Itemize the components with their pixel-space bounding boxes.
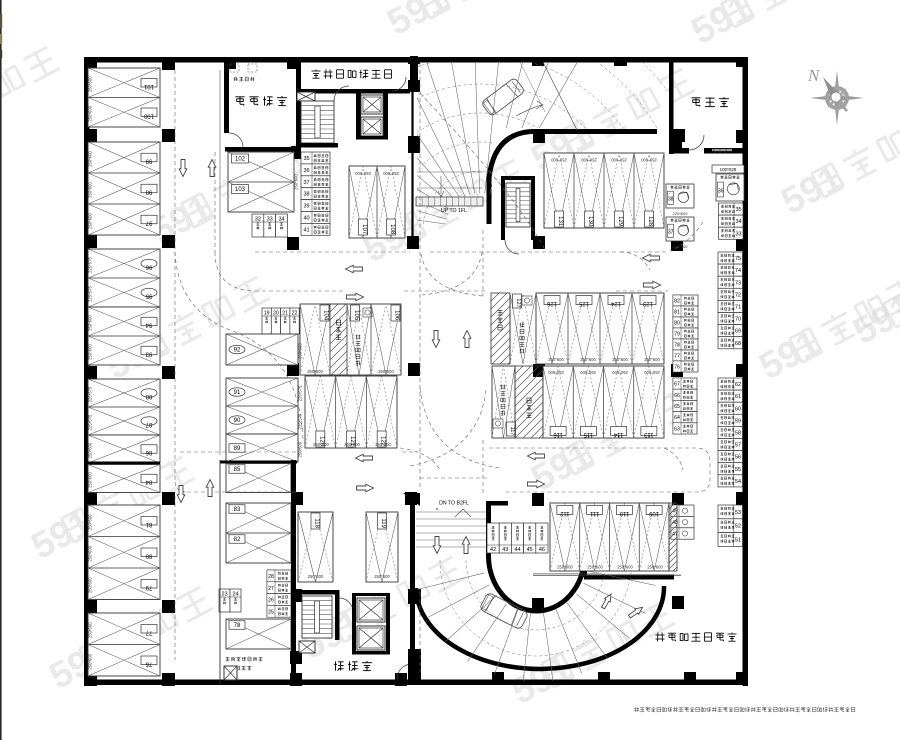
svg-text:72: 72 [735, 292, 741, 298]
svg-text:250*600: 250*600 [88, 442, 93, 458]
svg-text:250*600: 250*600 [88, 151, 93, 167]
svg-text:76: 76 [145, 660, 152, 666]
svg-text:87: 87 [145, 421, 152, 427]
svg-text:250*600: 250*600 [383, 171, 399, 176]
svg-text:32: 32 [255, 217, 261, 223]
svg-text:98: 98 [145, 189, 152, 195]
svg-text:97: 97 [145, 220, 152, 226]
svg-text:19: 19 [264, 311, 270, 317]
svg-text:81: 81 [145, 521, 152, 527]
svg-text:28: 28 [268, 574, 274, 580]
svg-text:126: 126 [546, 300, 557, 306]
svg-text:103: 103 [235, 187, 246, 193]
svg-text:250*600: 250*600 [375, 442, 391, 447]
svg-text:250*600: 250*600 [355, 171, 371, 176]
svg-text:116: 116 [553, 431, 563, 437]
svg-text:250*600: 250*600 [581, 158, 597, 163]
svg-text:57: 57 [735, 443, 741, 449]
svg-text:55: 55 [735, 467, 741, 473]
svg-text:21: 21 [282, 311, 288, 317]
svg-text:22: 22 [292, 311, 298, 317]
svg-text:59: 59 [735, 418, 741, 424]
svg-text:91: 91 [234, 390, 241, 396]
svg-text:108: 108 [389, 224, 395, 235]
svg-text:80: 80 [674, 321, 680, 327]
svg-text:27: 27 [268, 586, 274, 592]
svg-text:250*600: 250*600 [88, 472, 93, 488]
svg-text:250*600: 250*600 [88, 344, 93, 360]
svg-text:129: 129 [617, 216, 623, 227]
svg-text:37: 37 [303, 180, 309, 186]
svg-text:250*600: 250*600 [580, 357, 596, 362]
svg-text:117: 117 [509, 427, 515, 436]
svg-text:105: 105 [353, 310, 359, 321]
svg-text:38: 38 [668, 196, 674, 202]
svg-text:84: 84 [145, 479, 152, 485]
svg-text:113: 113 [643, 431, 653, 437]
svg-text:36: 36 [718, 188, 724, 194]
svg-text:119: 119 [380, 518, 386, 528]
svg-text:37: 37 [668, 229, 674, 235]
svg-text:63: 63 [674, 426, 680, 432]
svg-text:225*575: 225*575 [88, 257, 93, 273]
svg-text:74: 74 [735, 268, 741, 274]
svg-text:90: 90 [234, 418, 241, 424]
svg-text:250*600: 250*600 [612, 370, 628, 375]
svg-text:DN TO B2FL: DN TO B2FL [439, 501, 469, 507]
svg-text:69: 69 [735, 329, 741, 335]
svg-text:225*575: 225*575 [88, 414, 93, 430]
svg-text:118: 118 [314, 518, 320, 528]
svg-text:75: 75 [735, 256, 741, 262]
svg-text:128: 128 [647, 216, 653, 227]
svg-text:39: 39 [303, 204, 309, 210]
svg-text:34: 34 [735, 219, 741, 225]
svg-text:80: 80 [145, 552, 152, 558]
svg-text:81: 81 [674, 310, 680, 316]
svg-text:250*600: 250*600 [647, 565, 663, 570]
svg-text:250*600: 250*600 [88, 76, 93, 92]
svg-text:38: 38 [303, 192, 309, 198]
svg-text:26: 26 [268, 598, 274, 604]
svg-text:225*575: 225*575 [298, 385, 303, 401]
svg-text:250*600: 250*600 [557, 565, 573, 570]
svg-text:250*600: 250*600 [88, 182, 93, 198]
svg-text:250*600: 250*600 [307, 369, 323, 374]
svg-text:82: 82 [674, 299, 680, 305]
svg-text:96: 96 [145, 264, 152, 270]
svg-text:124: 124 [610, 300, 621, 306]
svg-text:250*600: 250*600 [88, 577, 93, 593]
svg-text:250*600: 250*600 [580, 370, 596, 375]
svg-text:88: 88 [145, 393, 152, 399]
svg-text:250*600: 250*600 [548, 370, 564, 375]
svg-text:78: 78 [674, 343, 680, 349]
svg-text:61: 61 [735, 394, 741, 400]
svg-text:250*600: 250*600 [344, 442, 360, 447]
svg-text:76: 76 [674, 365, 680, 371]
svg-text:104: 104 [323, 310, 329, 321]
svg-text:106: 106 [394, 310, 400, 321]
svg-text:25: 25 [268, 609, 274, 615]
svg-text:250*600: 250*600 [374, 574, 390, 579]
svg-text:73: 73 [735, 280, 741, 286]
svg-text:36: 36 [303, 168, 309, 174]
svg-text:250*600: 250*600 [308, 574, 324, 579]
svg-text:250*600: 250*600 [551, 158, 567, 163]
svg-text:46: 46 [539, 547, 545, 553]
svg-text:250*600: 250*600 [88, 622, 93, 638]
svg-text:N: N [807, 66, 821, 85]
svg-text:250*600: 250*600 [641, 158, 657, 163]
svg-text:250*600: 250*600 [644, 357, 660, 362]
svg-text:45: 45 [527, 547, 533, 553]
svg-text:44: 44 [514, 547, 520, 553]
svg-text:131: 131 [557, 216, 563, 227]
svg-text:125: 125 [578, 300, 589, 306]
svg-text:67: 67 [674, 382, 680, 388]
svg-text:60: 60 [735, 406, 741, 412]
svg-text:35: 35 [735, 207, 741, 213]
svg-text:56: 56 [735, 455, 741, 461]
svg-text:114: 114 [613, 431, 623, 437]
svg-text:77: 77 [145, 629, 152, 635]
svg-text:53: 53 [735, 510, 741, 516]
svg-text:250*600: 250*600 [298, 441, 303, 457]
svg-text:43: 43 [502, 547, 508, 553]
svg-text:70: 70 [735, 317, 741, 323]
svg-text:95: 95 [145, 293, 152, 299]
svg-text:250*600: 250*600 [88, 315, 93, 331]
svg-text:123: 123 [642, 300, 653, 306]
svg-text:68: 68 [735, 341, 741, 347]
svg-text:250*600: 250*600 [313, 442, 329, 447]
svg-text:35: 35 [303, 156, 309, 162]
svg-text:250*600: 250*600 [611, 158, 627, 163]
svg-text:79: 79 [674, 332, 680, 338]
svg-text:130: 130 [587, 216, 593, 227]
svg-text:250*600: 250*600 [617, 565, 633, 570]
svg-text:225*575: 225*575 [88, 386, 93, 402]
svg-text:42: 42 [490, 547, 496, 553]
svg-text:85: 85 [234, 467, 241, 473]
svg-text:99: 99 [145, 158, 152, 164]
svg-text:102: 102 [235, 157, 246, 163]
svg-text:71: 71 [735, 304, 741, 310]
svg-text:24: 24 [232, 592, 238, 598]
svg-text:65: 65 [674, 404, 680, 410]
svg-text:83: 83 [234, 507, 241, 513]
svg-text:225*575: 225*575 [298, 413, 303, 429]
svg-text:250*600: 250*600 [298, 343, 303, 359]
svg-text:225*575: 225*575 [88, 286, 93, 302]
svg-text:250*600: 250*600 [88, 653, 93, 669]
svg-text:250*600: 250*600 [294, 174, 299, 190]
svg-text:250*600: 250*600 [88, 514, 93, 530]
svg-text:94: 94 [145, 322, 152, 328]
svg-text:34: 34 [278, 217, 284, 223]
svg-text:250*600: 250*600 [548, 357, 564, 362]
svg-text:78: 78 [234, 623, 241, 629]
svg-text:220*600: 220*600 [673, 211, 689, 216]
svg-text:23: 23 [221, 592, 227, 598]
svg-text:250*600: 250*600 [378, 369, 394, 374]
svg-text:250*600: 250*600 [644, 370, 660, 375]
svg-text:250*600: 250*600 [88, 213, 93, 229]
svg-text:52: 52 [735, 524, 741, 530]
svg-text:77: 77 [674, 354, 680, 360]
svg-text:100*028: 100*028 [720, 167, 737, 172]
svg-text:111: 111 [589, 510, 599, 516]
svg-text:107: 107 [361, 224, 367, 235]
svg-text:82: 82 [234, 537, 241, 543]
svg-text:51: 51 [735, 538, 741, 544]
svg-text:66: 66 [674, 393, 680, 399]
svg-text:101: 101 [143, 83, 154, 89]
svg-text:79: 79 [145, 584, 152, 590]
svg-text:33: 33 [735, 231, 741, 237]
svg-text:250*600: 250*600 [612, 357, 628, 362]
svg-text:250*600: 250*600 [587, 565, 603, 570]
svg-text:220*600: 220*600 [673, 244, 689, 249]
svg-text:127: 127 [515, 298, 521, 307]
svg-text:40: 40 [303, 216, 309, 222]
svg-text:250*600: 250*600 [88, 105, 93, 121]
svg-text:112: 112 [559, 510, 569, 516]
svg-text:250*600: 250*600 [88, 545, 93, 561]
svg-text:100: 100 [143, 112, 154, 118]
svg-text:20: 20 [273, 311, 279, 317]
svg-text:86: 86 [145, 449, 152, 455]
svg-text:UP TO 1FL: UP TO 1FL [441, 208, 467, 214]
svg-text:62: 62 [735, 382, 741, 388]
svg-text:89: 89 [234, 446, 241, 452]
svg-text:93: 93 [145, 351, 152, 357]
svg-text:109: 109 [648, 510, 659, 516]
svg-text:92: 92 [234, 348, 241, 354]
svg-text:54: 54 [735, 479, 741, 485]
svg-text:58: 58 [735, 430, 741, 436]
svg-text:110: 110 [619, 510, 629, 516]
svg-text:41: 41 [303, 227, 309, 233]
svg-text:115: 115 [583, 431, 593, 437]
svg-text:64: 64 [674, 415, 680, 421]
svg-text:33: 33 [267, 217, 273, 223]
